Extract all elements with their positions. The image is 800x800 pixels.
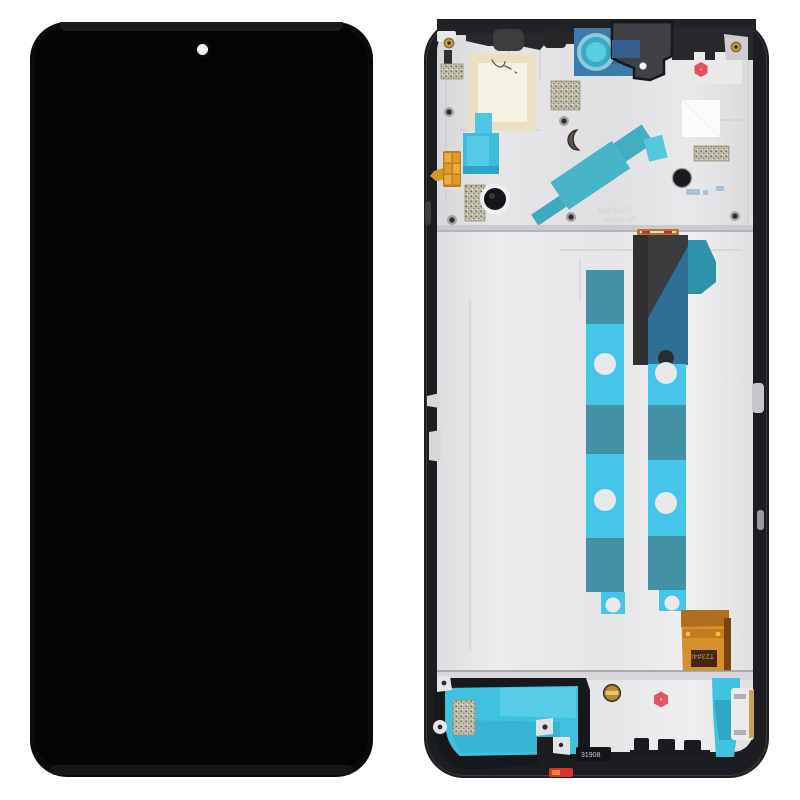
svg-text:31908: 31908 — [581, 752, 601, 759]
svg-text:WV04-4T: WV04-4T — [604, 215, 637, 226]
svg-text:NAV4Q4X: NAV4Q4X — [598, 205, 632, 216]
svg-text:T23#4C2: T23#4C2 — [685, 651, 714, 659]
